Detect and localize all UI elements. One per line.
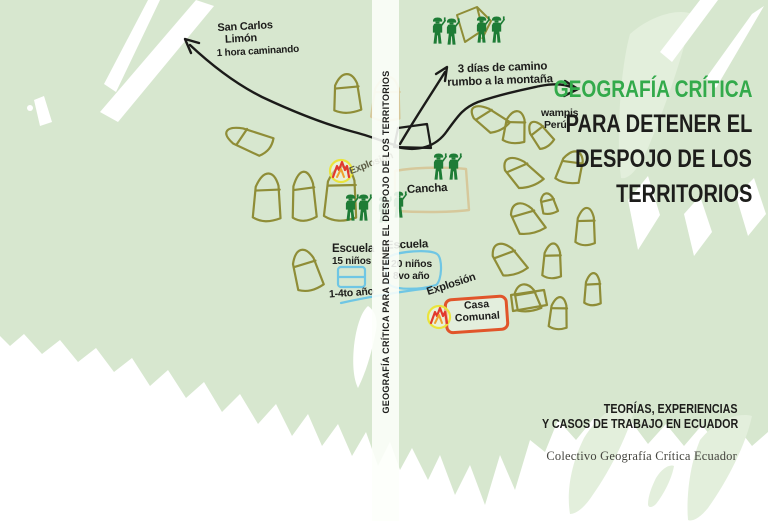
san-carlos-label: San Carlos Limón 1 hora caminando bbox=[217, 18, 299, 59]
book-cover-spread: San Carlos Limón 1 hora caminando 3 días… bbox=[0, 0, 768, 521]
soldier-icon bbox=[433, 17, 446, 43]
subtitle-line-2: Y CASOS DE TRABAJO EN ECUADOR bbox=[510, 417, 738, 432]
tent-house-icon bbox=[291, 171, 316, 221]
soldier-icon bbox=[447, 18, 460, 44]
casa-comunal-label: Casa Comunal bbox=[446, 298, 507, 325]
escuela-left-detail1: 15 niños bbox=[332, 256, 371, 267]
author-credit: Colectivo Geografía Crítica Ecuador bbox=[546, 449, 737, 464]
tent-house-icon bbox=[288, 247, 324, 293]
soldier-icon bbox=[492, 16, 505, 42]
title-line-3: DESPOJO DE LOS bbox=[504, 142, 752, 177]
subtitle-block: TEORÍAS, EXPERIENCIAS Y CASOS DE TRABAJO… bbox=[510, 402, 738, 432]
trail-to-montana bbox=[400, 72, 445, 144]
tent-house-icon bbox=[486, 240, 530, 277]
title-line-green: GEOGRAFÍA CRÍTICA bbox=[504, 72, 752, 107]
tent-house-icon bbox=[220, 122, 277, 157]
tent-house-icon bbox=[575, 207, 596, 246]
title-block: GEOGRAFÍA CRÍTICA PARA DETENER EL DESPOJ… bbox=[504, 72, 752, 212]
title-line-2: PARA DETENER EL bbox=[504, 107, 752, 142]
spine-title: GEOGRAFÍA CRÍTICA PARA DETENER EL DESPOJ… bbox=[381, 70, 391, 413]
soldier-icon bbox=[359, 194, 372, 220]
escuela-left-name: Escuela bbox=[332, 243, 374, 256]
soldier-icon bbox=[449, 153, 462, 179]
subtitle-line-1: TEORÍAS, EXPERIENCIAS bbox=[510, 402, 738, 417]
tent-house-icon bbox=[548, 296, 569, 330]
tent-house-icon bbox=[253, 173, 282, 222]
tent-house-icon bbox=[584, 273, 601, 306]
tent-house-icon bbox=[542, 243, 562, 279]
soldier-icon bbox=[477, 16, 490, 42]
cancha-label: Cancha bbox=[407, 182, 448, 197]
title-line-4: TERRITORIOS bbox=[504, 177, 752, 212]
trail-to-san-carlos bbox=[190, 45, 398, 146]
tent-house-icon bbox=[333, 74, 362, 113]
soldier-icon bbox=[434, 153, 447, 179]
